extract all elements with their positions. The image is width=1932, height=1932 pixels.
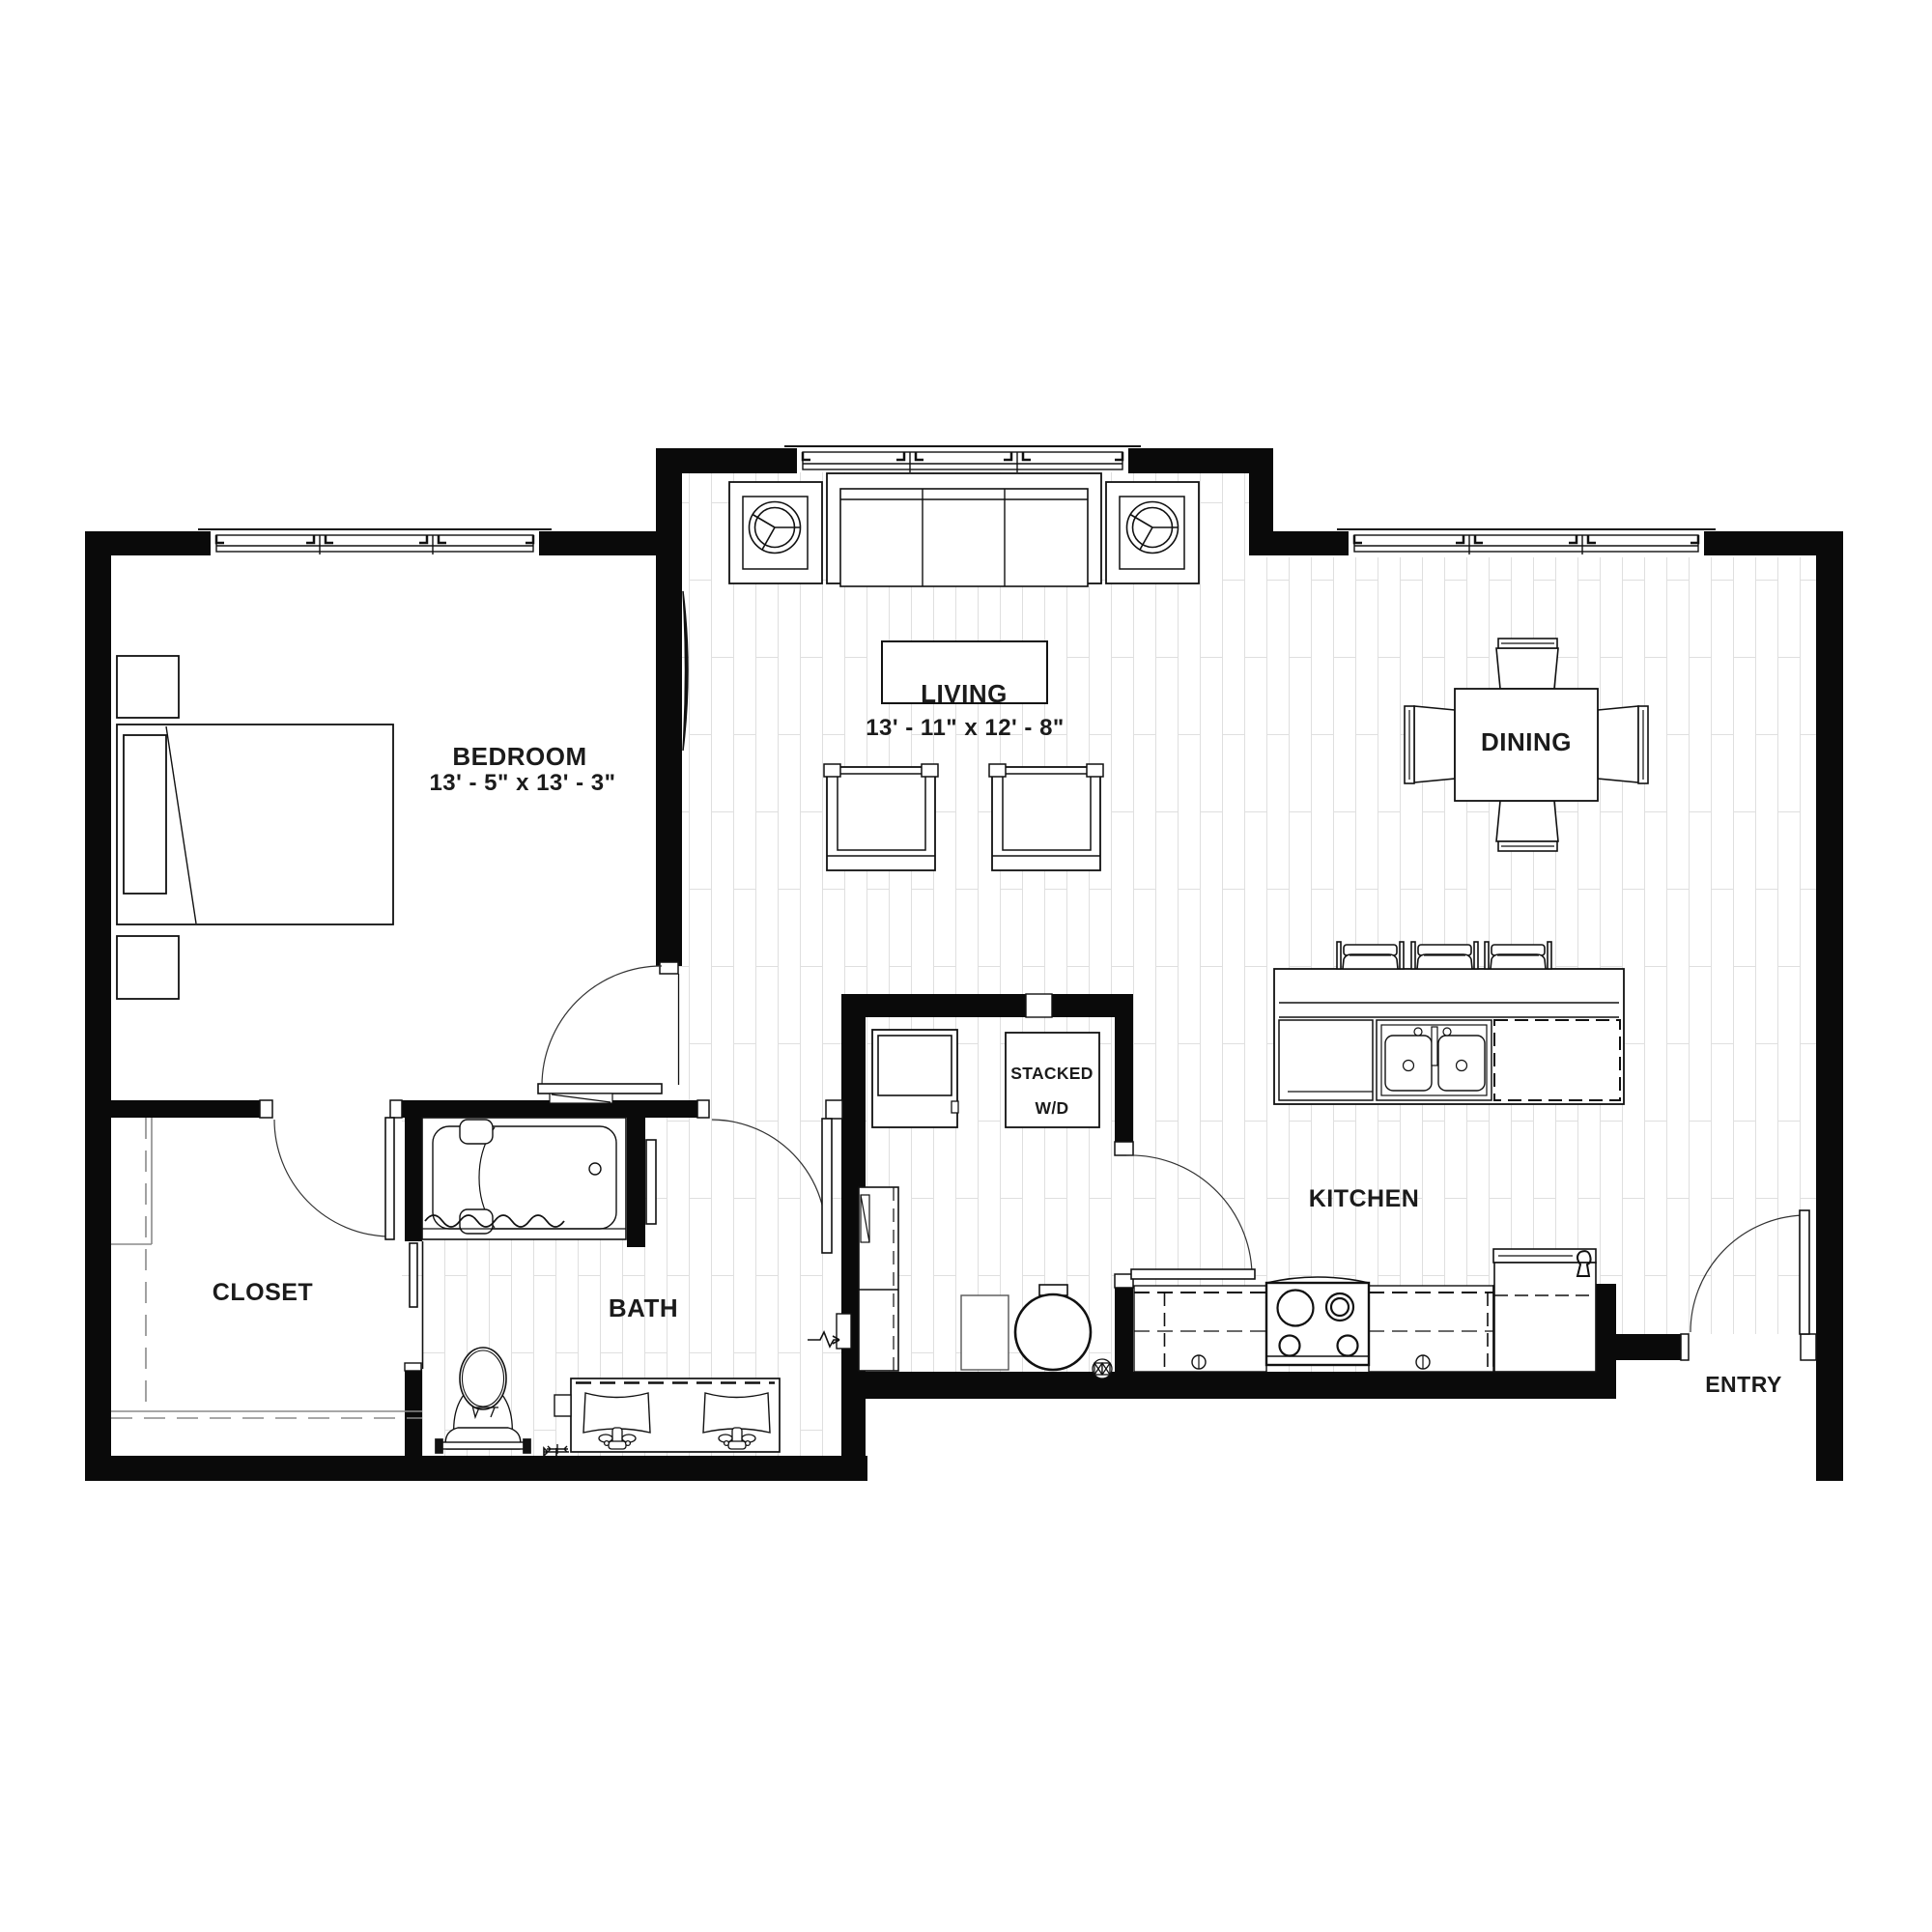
svg-text:13' - 5" x 13' - 3": 13' - 5" x 13' - 3" [429,770,615,796]
svg-text:KITCHEN: KITCHEN [1309,1185,1420,1212]
svg-text:ENTRY: ENTRY [1705,1372,1782,1397]
svg-text:CLOSET: CLOSET [213,1279,313,1306]
svg-text:W/D: W/D [1036,1098,1069,1118]
svg-text:BATH: BATH [609,1293,678,1322]
svg-text:13' - 11" x 12' - 8": 13' - 11" x 12' - 8" [866,715,1065,741]
svg-text:BEDROOM: BEDROOM [452,742,586,771]
svg-text:LIVING: LIVING [921,679,1008,708]
svg-text:DINING: DINING [1481,727,1572,756]
svg-text:STACKED: STACKED [1010,1064,1093,1083]
